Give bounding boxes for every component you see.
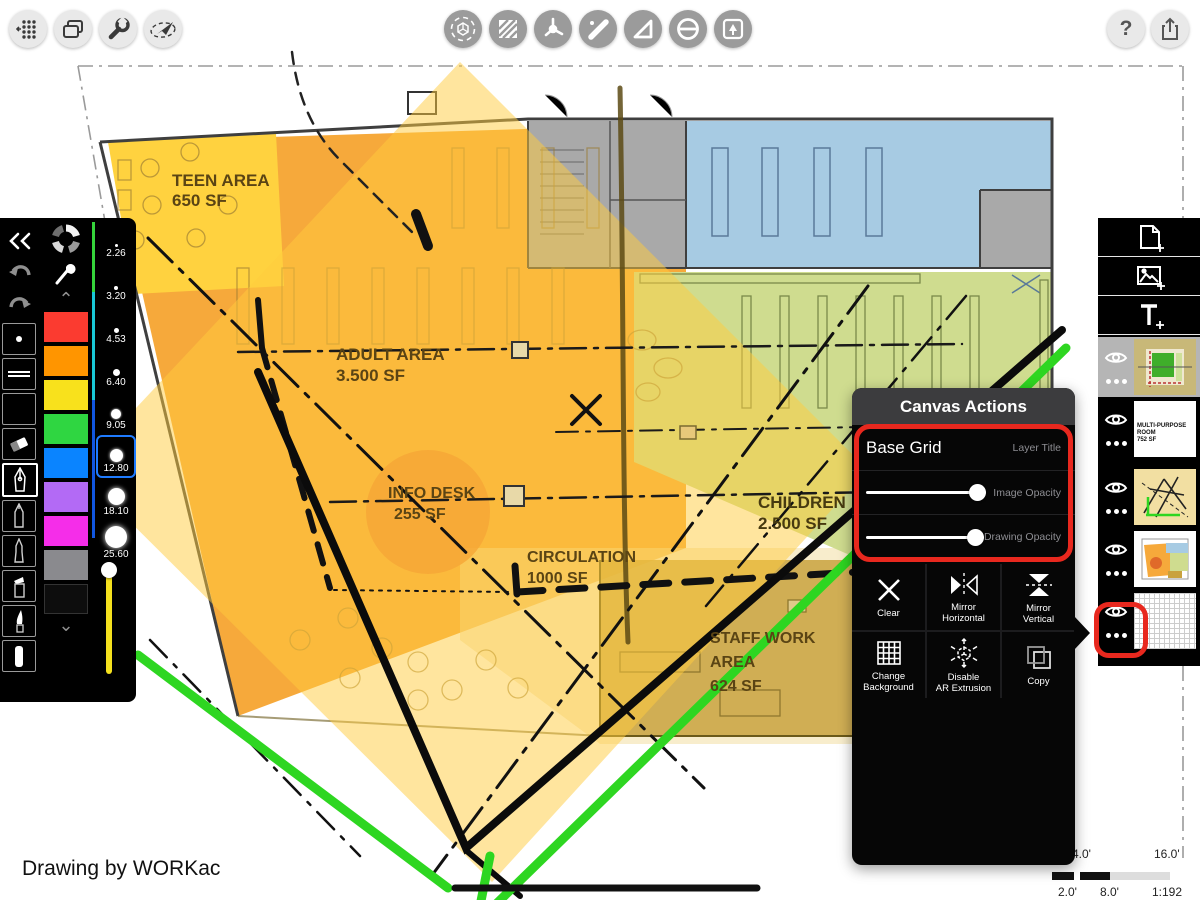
eyedropper-icon xyxy=(53,259,79,287)
thumb-room-sf: 752 SF xyxy=(1137,437,1193,444)
tool-ballpoint-pen[interactable] xyxy=(2,535,36,567)
fountain-pen-icon xyxy=(11,467,29,493)
opacity-slider-knob[interactable] xyxy=(101,562,117,578)
chevrons-left-icon xyxy=(7,232,33,250)
stroke-size-option-selected[interactable]: 12.80 xyxy=(96,435,136,478)
scale-segment xyxy=(1110,872,1170,880)
layer-options-button[interactable] xyxy=(1106,571,1127,576)
stroke-size-option[interactable]: 25.60 xyxy=(96,521,136,564)
pencil-icon xyxy=(10,503,28,529)
copy-button[interactable]: Copy xyxy=(1002,632,1075,698)
wrench-icon xyxy=(105,16,131,42)
adult-area-label: ADULT AREA xyxy=(336,345,445,364)
redo-icon xyxy=(8,295,32,315)
stamp-icon xyxy=(720,16,746,42)
swatch-magenta[interactable] xyxy=(44,516,88,546)
line-style-icon xyxy=(8,368,30,380)
snap-grid-button[interactable] xyxy=(9,10,47,48)
paint-stick-icon xyxy=(10,643,28,669)
image-opacity-label: Image Opacity xyxy=(993,487,1061,499)
collapse-panel-button[interactable] xyxy=(2,226,38,256)
pages-icon xyxy=(61,17,85,41)
share-button[interactable] xyxy=(1151,10,1189,48)
layers-panel: MULTI-PURPOSE ROOM752 SF xyxy=(1098,218,1200,666)
drawing-credit: Drawing by WORKac xyxy=(22,857,220,881)
scale-16ft: 16.0' xyxy=(1154,847,1180,861)
undo-icon xyxy=(8,263,32,283)
canvas-actions-title: Canvas Actions xyxy=(852,388,1075,425)
new-page-icon xyxy=(1133,221,1165,253)
image-opacity-knob[interactable] xyxy=(969,484,986,501)
ar-extrusion-icon xyxy=(948,637,980,669)
tool-paint-stick[interactable] xyxy=(2,640,36,672)
change-background-button[interactable]: ChangeBackground xyxy=(852,632,925,698)
layer-thumbnail[interactable]: MULTI-PURPOSE ROOM752 SF xyxy=(1134,401,1196,457)
stroke-size-option[interactable]: 9.05 xyxy=(96,392,136,435)
color-wheel-button[interactable] xyxy=(44,224,88,254)
layer-row-program-plan[interactable] xyxy=(1098,529,1200,589)
stroke-size-option[interactable]: 2.26 xyxy=(96,220,136,263)
set-square-button[interactable] xyxy=(624,10,662,48)
tool-pencil[interactable] xyxy=(2,500,36,532)
fly-through-icon xyxy=(149,17,177,41)
stroke-size-option[interactable]: 6.40 xyxy=(96,349,136,392)
layer-row-green-sketch[interactable] xyxy=(1098,337,1200,397)
snap-grid-icon xyxy=(16,17,40,41)
tool-brush[interactable] xyxy=(2,605,36,637)
add-image-icon xyxy=(1133,261,1165,291)
mirror-horizontal-button[interactable]: MirrorHorizontal xyxy=(927,564,1000,630)
opacity-slider[interactable] xyxy=(106,570,112,674)
scale-segment xyxy=(1052,872,1074,880)
visibility-eye-icon[interactable] xyxy=(1104,350,1128,365)
protractor-icon xyxy=(540,16,566,42)
color-wheel-icon xyxy=(50,223,82,255)
tool-fill[interactable] xyxy=(2,393,36,425)
set-square-icon xyxy=(630,16,656,42)
visibility-eye-icon[interactable] xyxy=(1104,412,1128,427)
stroke-size-option[interactable]: 18.10 xyxy=(96,478,136,521)
info-desk-sf: 255 SF xyxy=(394,506,446,523)
new-page-button[interactable] xyxy=(1098,218,1200,257)
swatch-black[interactable] xyxy=(44,584,88,614)
chisel-marker-icon xyxy=(10,573,28,599)
share-icon xyxy=(1158,16,1182,42)
layer-title-label: Layer Title xyxy=(1013,442,1061,454)
circulation-sf: 1000 SF xyxy=(527,570,588,587)
hatch-fill-icon xyxy=(496,17,520,41)
visibility-eye-icon[interactable] xyxy=(1104,604,1128,619)
change-background-icon xyxy=(874,638,904,668)
layer-options-button-base-grid[interactable] xyxy=(1106,633,1127,638)
mirror-vertical-icon xyxy=(1024,570,1054,600)
thumb-room-label: MULTI-PURPOSE ROOM xyxy=(1137,423,1193,437)
scale-2ft: 2.0' xyxy=(1058,885,1077,899)
circulation-label: CIRCULATION xyxy=(527,549,636,566)
swatch-scroll-down[interactable]: ⌄ xyxy=(44,618,88,632)
help-icon: ? xyxy=(1120,17,1133,41)
pages-button[interactable] xyxy=(54,10,92,48)
info-desk-label: INFO DESK xyxy=(388,485,476,502)
copy-icon xyxy=(1024,643,1054,673)
layer-thumbnail[interactable] xyxy=(1134,469,1196,525)
children-sf: 2.500 SF xyxy=(758,514,827,533)
tool-eraser[interactable] xyxy=(2,428,36,460)
clear-icon xyxy=(874,575,904,605)
settings-wrench-button[interactable] xyxy=(99,10,137,48)
ballpoint-pen-icon xyxy=(10,538,28,564)
ar-move-button[interactable] xyxy=(444,10,482,48)
add-image-button[interactable] xyxy=(1098,257,1200,296)
staff-area-label1: STAFF WORK xyxy=(710,630,816,647)
mirror-vertical-button[interactable]: MirrorVertical xyxy=(1002,564,1075,630)
fly-through-button[interactable] xyxy=(144,10,182,48)
help-button[interactable]: ? xyxy=(1107,10,1145,48)
tool-fountain-pen[interactable] xyxy=(2,463,38,497)
visibility-eye-icon[interactable] xyxy=(1104,480,1128,495)
size-strip xyxy=(92,222,95,538)
swatch-orange[interactable] xyxy=(44,346,88,376)
tool-chisel-marker[interactable] xyxy=(2,570,36,602)
stamp-button[interactable] xyxy=(714,10,752,48)
add-text-icon xyxy=(1133,300,1165,330)
swatch-gray[interactable] xyxy=(44,550,88,580)
drawing-opacity-label: Drawing Opacity xyxy=(984,531,1061,543)
tool-line-style[interactable] xyxy=(2,358,36,390)
top-toolbar: ? xyxy=(0,0,1200,58)
canvas-actions-popup: Canvas Actions Base Grid Layer Title Ima… xyxy=(852,388,1075,865)
tool-dot-brush[interactable] xyxy=(2,323,36,355)
smudge-mask-button[interactable] xyxy=(669,10,707,48)
layer-row-room-label[interactable]: MULTI-PURPOSE ROOM752 SF xyxy=(1098,399,1200,459)
protractor-button[interactable] xyxy=(534,10,572,48)
ruler-icon xyxy=(585,16,611,42)
smudge-mask-icon xyxy=(675,16,701,42)
scale-8ft: 8.0' xyxy=(1100,885,1119,899)
scale-segment xyxy=(1080,872,1110,880)
swatch-green[interactable] xyxy=(44,414,88,444)
undo-button[interactable] xyxy=(2,258,38,288)
eraser-icon xyxy=(8,435,30,453)
popup-pointer xyxy=(1074,616,1090,650)
adult-area-sf: 3.500 SF xyxy=(336,366,405,385)
visibility-eye-icon[interactable] xyxy=(1104,542,1128,557)
layer-title-value[interactable]: Base Grid xyxy=(866,438,942,458)
swatch-yellow[interactable] xyxy=(44,380,88,410)
hatch-fill-button[interactable] xyxy=(489,10,527,48)
disable-ar-extrusion-button[interactable]: DisableAR Extrusion xyxy=(927,632,1000,698)
dot-brush-icon xyxy=(16,336,22,342)
staff-area-sf: 624 SF xyxy=(710,678,762,695)
mirror-horizontal-icon xyxy=(947,571,981,599)
layer-options-button[interactable] xyxy=(1106,441,1127,446)
ruler-button[interactable] xyxy=(579,10,617,48)
teen-area-label: TEEN AREA xyxy=(172,171,270,190)
layer-options-button[interactable] xyxy=(1106,509,1127,514)
swatch-scroll-up[interactable]: ⌃ xyxy=(44,292,88,306)
staff-area-label2: AREA xyxy=(710,654,756,671)
clear-button[interactable]: Clear xyxy=(852,564,925,630)
stroke-size-option[interactable]: 4.53 xyxy=(96,306,136,349)
layer-row-base-grid[interactable] xyxy=(1098,591,1200,651)
teen-area-sf: 650 SF xyxy=(172,191,227,210)
layer-thumbnail[interactable] xyxy=(1134,339,1196,395)
layer-thumbnail[interactable] xyxy=(1134,593,1196,649)
swatch-blue[interactable] xyxy=(44,448,88,478)
drawing-tools-panel: ⌃ ⌄ 2.26 3.20 4.53 6.40 9.05 12.80 18.10… xyxy=(0,218,136,702)
children-label: CHILDREN xyxy=(758,493,846,512)
eyedropper-button[interactable] xyxy=(44,256,88,290)
swatch-purple[interactable] xyxy=(44,482,88,512)
image-opacity-slider[interactable] xyxy=(866,491,986,494)
stroke-size-option[interactable]: 3.20 xyxy=(96,263,136,306)
drawing-opacity-knob[interactable] xyxy=(967,529,984,546)
drawing-opacity-slider[interactable] xyxy=(866,536,984,539)
gray-core-right xyxy=(980,190,1052,268)
redo-button[interactable] xyxy=(2,290,38,320)
ar-move-icon xyxy=(449,15,477,43)
swatch-red[interactable] xyxy=(44,312,88,342)
scale-ratio: 1:192 xyxy=(1152,885,1182,899)
layer-thumbnail[interactable] xyxy=(1134,531,1196,587)
layer-row-sketch-lines[interactable] xyxy=(1098,467,1200,527)
layer-options-button[interactable] xyxy=(1106,379,1127,384)
brush-icon xyxy=(10,608,28,634)
add-text-button[interactable] xyxy=(1098,296,1200,335)
